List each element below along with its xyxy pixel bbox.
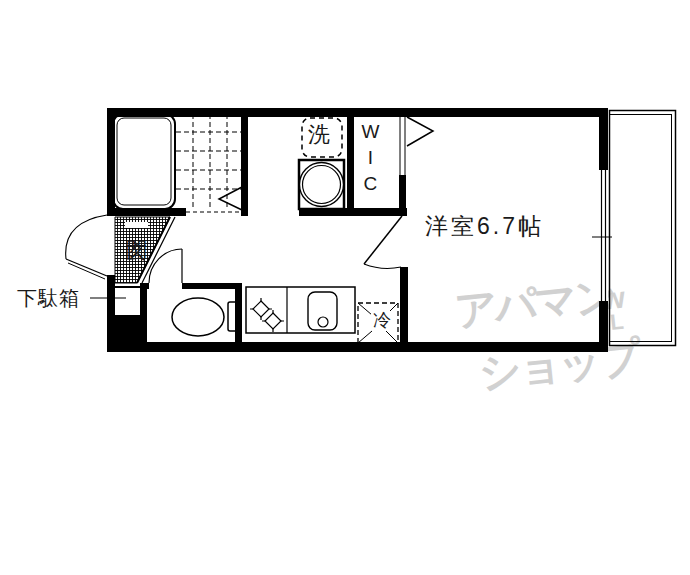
floorplan-drawing <box>0 0 690 575</box>
wall-wic-right-lower <box>399 175 406 215</box>
balcony <box>610 111 676 346</box>
wic-label: WIC <box>360 121 380 199</box>
bathroom-folding-door <box>186 187 242 212</box>
shoe-cabinet-label: 下駄箱 <box>17 288 80 309</box>
wall-toilet-right <box>235 283 242 342</box>
wall-right-upper <box>599 108 608 170</box>
wall-toilet-top-a <box>140 283 149 289</box>
wall-hall-room <box>400 267 408 352</box>
main-room-door <box>364 216 402 268</box>
toilet <box>172 298 241 336</box>
floorplan-canvas: アパマン ショップ w L <box>0 0 690 575</box>
entrance-door <box>66 215 107 279</box>
wall-left-upper <box>107 108 115 215</box>
wic-door <box>400 117 433 175</box>
wall-entrance-mass <box>107 316 147 342</box>
toilet-door <box>149 249 182 283</box>
wall-top <box>107 108 608 117</box>
shoe-cabinet <box>113 287 142 316</box>
main-room-label: 洋室6.7帖 <box>425 214 544 238</box>
wall-wic-left <box>347 108 354 215</box>
fridge-label: 冷 <box>371 311 393 330</box>
bathroom-tile-grid <box>176 114 241 208</box>
washing-machine-pan <box>299 160 344 209</box>
wall-bottom <box>107 342 608 352</box>
entrance-label: 玄関 <box>125 222 148 228</box>
kitchen-sink <box>308 292 337 330</box>
wall-mid-left <box>107 208 186 216</box>
wall-bath-right <box>241 108 248 216</box>
wall-toilet-top-b <box>182 283 242 289</box>
bathtub <box>113 114 175 209</box>
washer-label: 洗 <box>308 123 330 146</box>
wall-right-lower <box>599 301 608 352</box>
